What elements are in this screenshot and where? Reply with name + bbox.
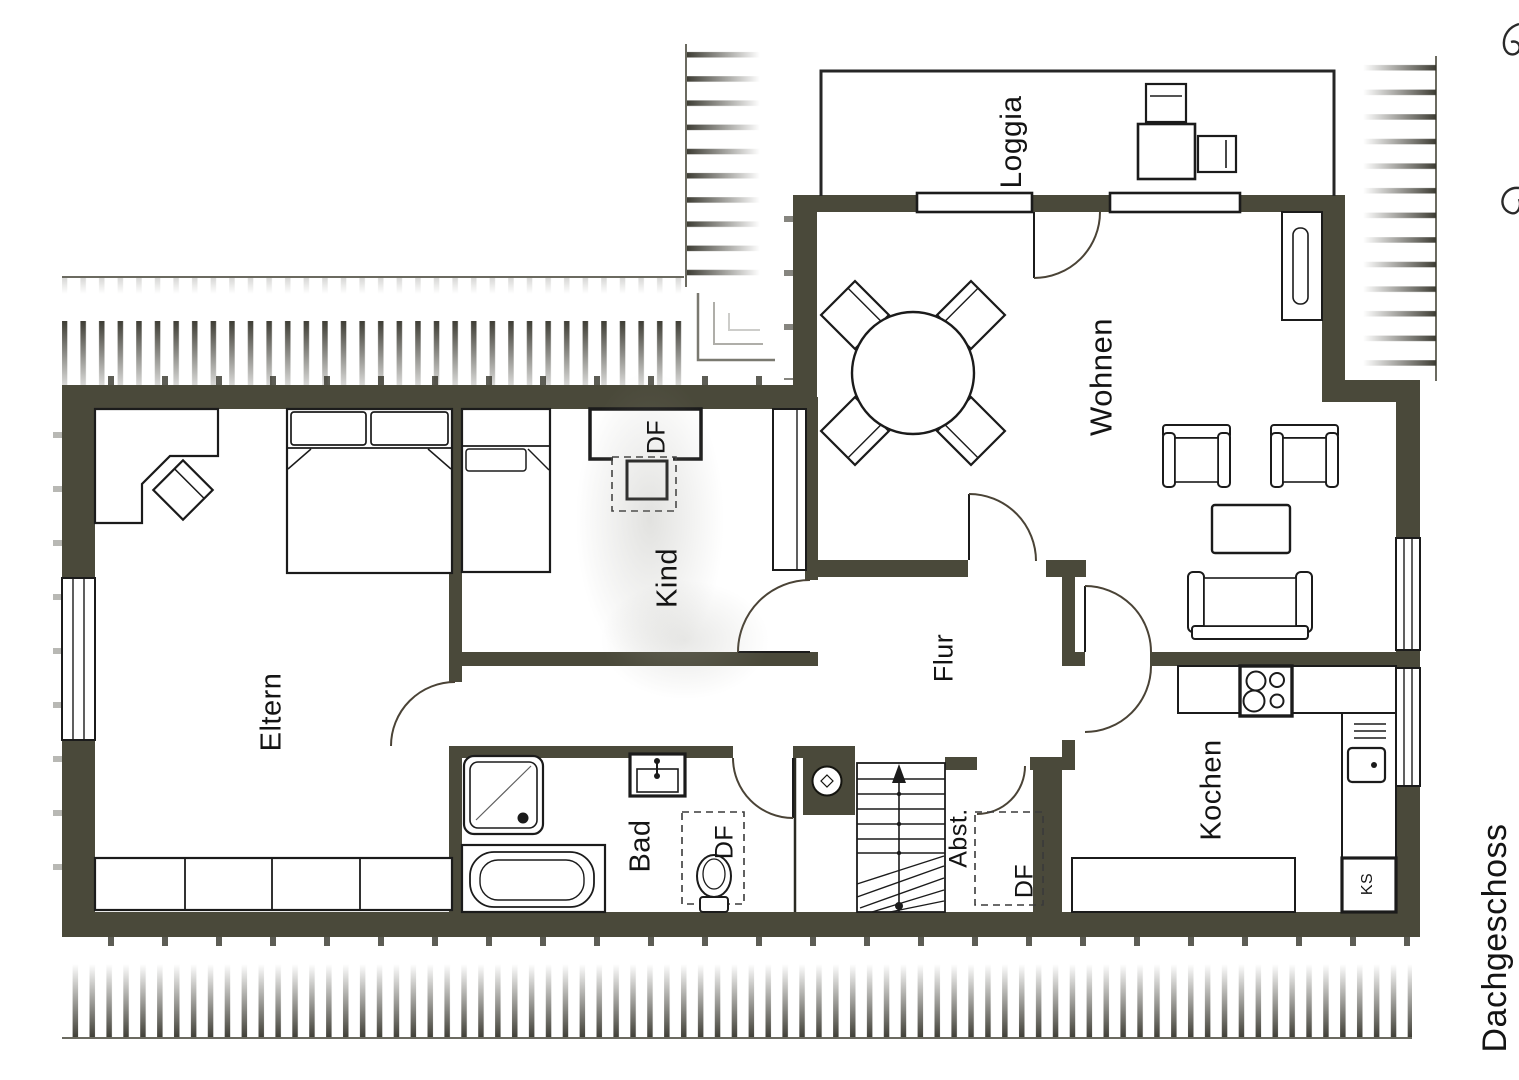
fridge-label: KS <box>1360 873 1376 895</box>
room-label-bad: Bad <box>627 819 656 872</box>
bathroom-sink <box>630 754 685 796</box>
wall-flur-east <box>1062 560 1075 666</box>
round-table <box>852 312 974 434</box>
kitchen-counter-bottom <box>1072 858 1295 912</box>
toilet <box>697 855 731 912</box>
kitchen-counter-right <box>1342 713 1396 858</box>
wall-flur-wohnen-a <box>805 560 968 577</box>
window-kochen-east <box>1396 668 1420 786</box>
room-label-loggia: Loggia <box>997 95 1027 188</box>
handwritten-marks <box>1502 24 1519 213</box>
desk-stool <box>627 461 667 499</box>
door-kind <box>738 580 810 652</box>
wall-outer-right <box>1396 380 1420 937</box>
wall-outer-top-left <box>62 385 817 409</box>
wall-flur-east-lower <box>1062 740 1075 770</box>
door-kochen-north <box>1085 586 1151 732</box>
single-bed <box>462 409 550 572</box>
door-eltern <box>391 682 455 746</box>
room-label-kind: Kind <box>654 548 683 608</box>
roof-hatch-right-of-loggia <box>1357 56 1436 381</box>
dining-set <box>821 281 1005 465</box>
window-loggia-right <box>1110 193 1240 212</box>
roof-hip-corner-marks <box>698 293 775 360</box>
loggia-furniture <box>1138 84 1236 179</box>
door-wohnen <box>969 494 1036 561</box>
double-bed <box>287 409 452 573</box>
corner-desk <box>95 409 218 523</box>
floor-title: Dachgeschoss <box>1478 823 1512 1052</box>
wall-abstell-north-b <box>1030 757 1062 770</box>
floor-plan-drawing <box>0 0 1519 1080</box>
wall-abstell-north-a <box>945 757 977 770</box>
window-wohnen-east <box>1396 538 1420 650</box>
bathtub <box>462 845 605 912</box>
wall-wohnen-west <box>793 195 817 409</box>
stairs <box>857 763 945 912</box>
wall-wohnen-kochen-a <box>1062 652 1085 666</box>
window-eltern-west <box>62 578 95 740</box>
wall-bad-north-b <box>793 746 803 758</box>
kochen-furniture <box>1072 666 1396 912</box>
shower <box>464 756 543 834</box>
roof-hatch-top-left <box>62 277 684 385</box>
kind-cabinet <box>773 409 806 570</box>
wall-wohnen-loggia <box>793 195 1345 212</box>
armchair-left <box>1163 425 1230 487</box>
roof-window-label-abstell: DF <box>1013 864 1038 898</box>
room-label-abstell: Abst. <box>947 808 972 867</box>
armchair-right <box>1271 425 1338 487</box>
floor-plan-page: Loggia Wohnen Kind Eltern Flur Bad Koche… <box>0 0 1519 1080</box>
eltern-furniture <box>95 409 452 910</box>
door-bad <box>733 758 793 818</box>
room-label-kochen: Kochen <box>1198 739 1227 840</box>
wall-outer-bottom <box>62 912 1420 937</box>
room-label-wohnen: Wohnen <box>1086 318 1117 436</box>
coffee-table <box>1212 505 1290 553</box>
kind-furniture <box>462 409 806 572</box>
chimney <box>803 746 855 815</box>
loggia-table <box>1138 124 1195 179</box>
door-abstell <box>977 766 1025 814</box>
door-loggia <box>1034 212 1100 278</box>
bad-fixtures <box>462 754 744 912</box>
loggia-chair-right <box>1198 136 1236 172</box>
roof-hatch-bottom <box>62 956 1412 1038</box>
wall-kind-south <box>449 652 818 666</box>
sofa <box>1188 572 1312 639</box>
loggia-chair-top <box>1146 84 1186 122</box>
shower-drain <box>518 813 529 824</box>
wall-wohnen-kochen-b <box>1150 652 1396 666</box>
radiator <box>1282 212 1322 320</box>
loggia-outline <box>821 71 1334 196</box>
desk-chair <box>153 460 212 519</box>
roof-window-label-kind: DF <box>645 420 670 454</box>
wardrobe <box>95 858 452 910</box>
room-label-flur: Flur <box>931 634 958 683</box>
roof-hatch-left-of-loggia <box>686 44 775 360</box>
roof-window-label-bad: DF <box>713 825 738 859</box>
room-label-eltern: Eltern <box>258 673 287 752</box>
window-loggia-left <box>917 193 1032 212</box>
stove <box>1240 666 1292 716</box>
wall-wohnen-east-upper <box>1322 195 1345 400</box>
